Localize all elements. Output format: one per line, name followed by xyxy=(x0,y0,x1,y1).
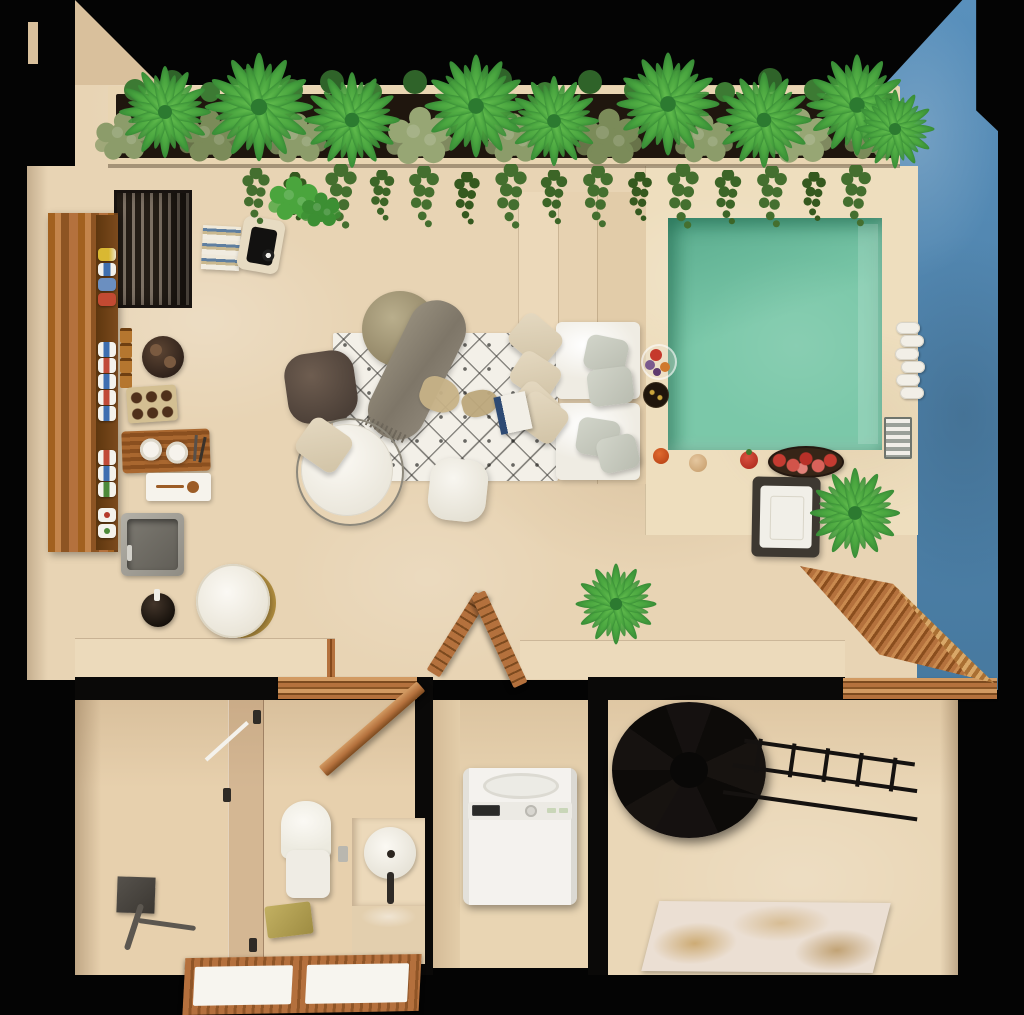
books-stack xyxy=(201,225,241,271)
canned-drink xyxy=(98,248,116,261)
bottle xyxy=(98,406,116,421)
bottle xyxy=(98,450,116,465)
washer-button xyxy=(559,808,568,813)
towel-roll xyxy=(895,348,919,360)
spice-jars xyxy=(120,328,133,388)
sage-pillow xyxy=(586,365,635,407)
toilet-seat xyxy=(286,850,330,898)
cup xyxy=(140,438,163,461)
bottle xyxy=(98,374,116,389)
towel-roll xyxy=(896,374,920,386)
floor-mat xyxy=(193,965,293,1006)
counter-wall-top xyxy=(75,638,335,679)
door-threshold xyxy=(278,677,417,699)
cup xyxy=(166,441,189,464)
wall xyxy=(606,677,845,700)
utensil xyxy=(193,435,198,461)
apple-bowl xyxy=(768,446,844,478)
door-threshold xyxy=(843,678,997,699)
towel-roll xyxy=(900,387,924,399)
utensil xyxy=(198,437,206,463)
cup xyxy=(150,344,162,356)
glass-clamp xyxy=(253,710,261,724)
sink-faucet xyxy=(127,545,132,561)
shower-glass-partition xyxy=(228,700,264,962)
wall xyxy=(75,677,280,700)
bottle xyxy=(98,466,116,481)
towel-roll xyxy=(901,361,925,373)
angled-wall xyxy=(75,0,165,90)
canned-drink xyxy=(98,293,116,306)
bottle xyxy=(98,342,116,357)
washer-knob xyxy=(525,805,537,817)
vanity-faucet xyxy=(387,872,394,904)
brown-lounge-cushion xyxy=(281,347,360,426)
glass-fruit-bowl xyxy=(641,344,677,380)
duckboard-mats xyxy=(182,954,421,1015)
planter-shadow xyxy=(108,164,900,168)
washer-lid xyxy=(483,773,559,799)
glass-clamp xyxy=(249,938,257,952)
record-player xyxy=(246,226,278,266)
snack-bowl xyxy=(643,382,669,408)
soap-pump xyxy=(154,589,160,601)
washer-display xyxy=(472,805,500,816)
glass-clamp xyxy=(223,788,231,802)
round-fruit xyxy=(689,454,707,472)
washer-button xyxy=(547,808,556,813)
closet-wall-face xyxy=(433,700,460,968)
jar xyxy=(98,508,116,522)
fruit xyxy=(650,349,662,361)
wooden-spoon xyxy=(187,481,199,493)
floorplan-canvas xyxy=(0,0,1024,1015)
kitchen-sink xyxy=(121,513,184,576)
serving-board xyxy=(146,473,211,501)
serving-tray xyxy=(142,336,184,378)
bottle xyxy=(98,358,116,373)
side-table xyxy=(196,564,270,638)
shelf-compartment xyxy=(96,215,118,550)
plunge-pool xyxy=(668,218,882,450)
canned-drink xyxy=(98,278,116,291)
drying-rack xyxy=(121,428,210,473)
pool-lounger xyxy=(751,476,820,557)
wall-edge xyxy=(28,22,38,64)
bottle xyxy=(98,390,116,405)
soap-pot xyxy=(141,593,175,627)
grill xyxy=(114,190,192,308)
wall xyxy=(588,677,608,975)
canned-drink xyxy=(98,263,116,276)
planter-soil xyxy=(116,94,892,158)
lounger-stitch xyxy=(770,496,805,541)
white-ottoman xyxy=(426,456,490,524)
sink-basin xyxy=(127,519,178,570)
ledge-wall-top xyxy=(520,640,845,679)
orange-fruit xyxy=(653,448,669,464)
gold-towel xyxy=(264,901,314,938)
floor-mat xyxy=(305,963,409,1004)
jar xyxy=(98,524,116,538)
washing-machine xyxy=(463,768,577,905)
towel-roll xyxy=(896,322,920,334)
strawberry xyxy=(740,451,758,469)
spoon-handle xyxy=(156,485,184,488)
towel-roll xyxy=(900,335,924,347)
bottle xyxy=(98,482,116,497)
plant-pot xyxy=(832,492,872,532)
fruit xyxy=(653,368,661,376)
fruit xyxy=(660,362,670,372)
striped-towel-stack xyxy=(884,417,912,459)
pool-bench-step xyxy=(858,224,878,444)
bottle-crate xyxy=(126,384,178,423)
gold-floor-mat xyxy=(641,901,891,973)
cup xyxy=(164,356,176,368)
flush-plate xyxy=(338,846,348,862)
